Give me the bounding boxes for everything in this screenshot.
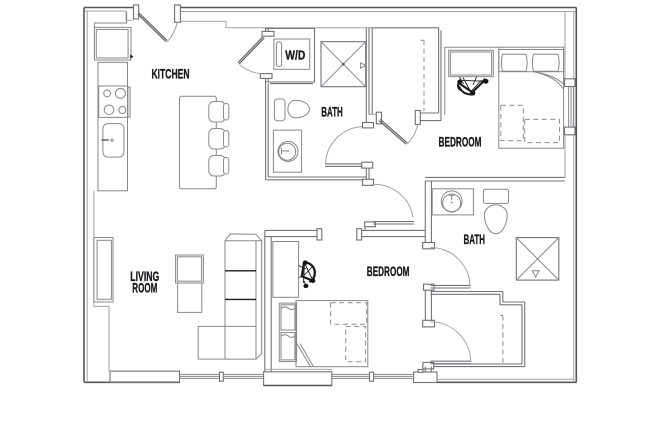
svg-text:KITCHEN: KITCHEN bbox=[152, 67, 190, 82]
svg-text:BATH: BATH bbox=[464, 232, 486, 247]
svg-text:BEDROOM: BEDROOM bbox=[367, 264, 410, 279]
svg-text:BEDROOM: BEDROOM bbox=[439, 135, 482, 150]
svg-text:W/D: W/D bbox=[285, 48, 305, 63]
svg-text:BATH: BATH bbox=[321, 105, 343, 120]
svg-text:ROOM: ROOM bbox=[132, 281, 157, 296]
